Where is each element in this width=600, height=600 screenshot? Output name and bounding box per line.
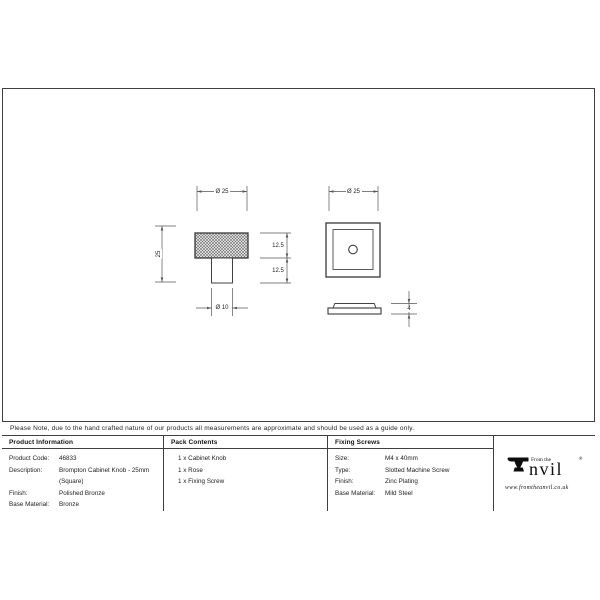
row-value: Polished Bronze — [59, 488, 105, 500]
table-row: Size: M4 x 40mm — [328, 453, 493, 465]
pack-contents-body: 1 x Cabinet Knob 1 x Rose 1 x Fixing Scr… — [164, 449, 327, 488]
row-label: Product Code: — [9, 453, 59, 465]
pack-contents-section: Pack Contents 1 x Cabinet Knob 1 x Rose … — [164, 436, 328, 511]
table-row: Base Material: Mild Steel — [328, 488, 493, 500]
row-value: Slotted Machine Screw — [385, 465, 449, 477]
row-label: Base Material: — [9, 499, 59, 511]
dim-label-head-height: 12.5 — [271, 243, 286, 249]
table-row: Finish: Zinc Plating — [328, 476, 493, 488]
brand-logo-cell: From the nvil ® www.fromtheanvil.co.uk — [494, 436, 595, 511]
row-label: Finish: — [9, 488, 59, 500]
table-row: (Square) — [2, 476, 163, 488]
anvil-logo-icon — [507, 457, 529, 472]
product-information-body: Product Code: 46833 Description: Brompto… — [2, 449, 163, 511]
logo-website-text: www.fromtheanvil.co.uk — [505, 485, 569, 491]
note-bar: Please Note, due to the hand crafted nat… — [2, 421, 595, 436]
row-label: Description: — [9, 465, 59, 477]
spec-sheet-page: Ø 25 25 12.5 12.5 Ø 10 Ø 25 4 Please Not… — [0, 0, 600, 600]
fixing-screws-body: Size: M4 x 40mm Type: Slotted Machine Sc… — [328, 449, 493, 499]
product-information-section: Product Information Product Code: 46833 … — [2, 436, 164, 511]
list-item: 1 x Cabinet Knob — [164, 453, 327, 465]
title-block: Product Information Product Code: 46833 … — [2, 436, 595, 511]
dim-label-stem-height: 12.5 — [271, 268, 286, 274]
list-item: 1 x Rose — [164, 465, 327, 477]
row-label: Base Material: — [335, 488, 385, 500]
note-text: Please Note, due to the hand crafted nat… — [2, 425, 414, 432]
logo-brand-text: nvil — [529, 460, 563, 478]
table-row: Base Material: Bronze — [2, 499, 163, 511]
table-row: Product Code: 46833 — [2, 453, 163, 465]
row-label — [9, 476, 59, 488]
fixing-screws-header: Fixing Screws — [328, 436, 493, 449]
table-row: Description: Brompton Cabinet Knob - 25m… — [2, 465, 163, 477]
table-row: Finish: Polished Bronze — [2, 488, 163, 500]
dim-label-plan-diameter: Ø 25 — [345, 189, 361, 195]
row-value: Mild Steel — [385, 488, 413, 500]
dim-label-front-height: 25 — [156, 249, 162, 259]
row-value: 46833 — [59, 453, 77, 465]
row-label: Finish: — [335, 476, 385, 488]
row-value: Zinc Plating — [385, 476, 418, 488]
row-value: M4 x 40mm — [385, 453, 418, 465]
dim-label-stem-diameter: Ø 10 — [214, 305, 230, 311]
pack-contents-header: Pack Contents — [164, 436, 327, 449]
row-value: Brompton Cabinet Knob - 25mm — [59, 465, 149, 477]
fixing-screws-section: Fixing Screws Size: M4 x 40mm Type: Slot… — [328, 436, 494, 511]
row-label: Size: — [335, 453, 385, 465]
product-information-header: Product Information — [2, 436, 163, 449]
row-value: Bronze — [59, 499, 79, 511]
dim-label-front-diameter: Ø 25 — [214, 189, 230, 195]
dim-label-rose-thickness: 4 — [406, 306, 412, 312]
row-label: Type: — [335, 465, 385, 477]
registered-trademark-icon: ® — [579, 456, 582, 461]
table-row: Type: Slotted Machine Screw — [328, 465, 493, 477]
list-item: 1 x Fixing Screw — [164, 476, 327, 488]
row-value: (Square) — [59, 476, 84, 488]
